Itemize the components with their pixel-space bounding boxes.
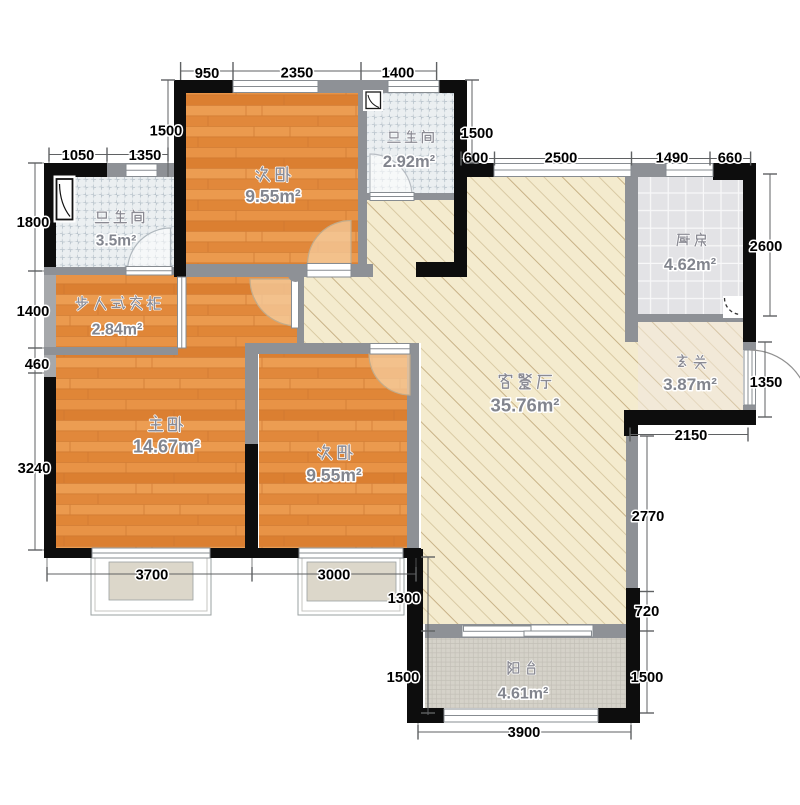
svg-text:1500: 1500 xyxy=(150,124,183,140)
svg-text:1400: 1400 xyxy=(382,66,415,82)
svg-text:4.61m²: 4.61m² xyxy=(498,686,549,703)
svg-text:9.55m²: 9.55m² xyxy=(245,186,301,206)
svg-text:1350: 1350 xyxy=(129,148,162,164)
svg-text:3240: 3240 xyxy=(18,461,51,477)
svg-text:3.87m²: 3.87m² xyxy=(663,375,717,394)
svg-text:2770: 2770 xyxy=(632,509,665,525)
svg-text:1400: 1400 xyxy=(17,304,50,320)
svg-text:35.76m²: 35.76m² xyxy=(491,395,560,416)
svg-text:2.92m²: 2.92m² xyxy=(383,153,436,171)
svg-text:1500: 1500 xyxy=(631,670,664,686)
svg-text:1350: 1350 xyxy=(750,375,783,391)
svg-text:1800: 1800 xyxy=(17,215,50,231)
svg-text:2350: 2350 xyxy=(281,66,314,82)
svg-text:600: 600 xyxy=(464,151,489,167)
svg-text:3900: 3900 xyxy=(508,725,541,741)
svg-text:950: 950 xyxy=(195,66,220,82)
svg-text:2500: 2500 xyxy=(545,151,578,167)
svg-text:720: 720 xyxy=(635,604,660,620)
svg-text:2.84m²: 2.84m² xyxy=(92,322,143,339)
svg-text:1490: 1490 xyxy=(656,151,689,167)
svg-text:4.62m²: 4.62m² xyxy=(664,256,717,274)
svg-text:460: 460 xyxy=(25,357,50,373)
svg-text:2150: 2150 xyxy=(675,428,708,444)
svg-text:14.67m²: 14.67m² xyxy=(133,436,200,456)
svg-text:3000: 3000 xyxy=(318,568,351,584)
svg-text:660: 660 xyxy=(718,151,743,167)
svg-text:2600: 2600 xyxy=(750,239,783,255)
svg-text:9.55m²: 9.55m² xyxy=(306,465,362,485)
svg-text:1500: 1500 xyxy=(387,670,420,686)
svg-text:1500: 1500 xyxy=(461,126,494,142)
svg-text:3.5m²: 3.5m² xyxy=(96,232,137,249)
svg-text:1050: 1050 xyxy=(62,148,95,164)
svg-text:3700: 3700 xyxy=(136,568,169,584)
svg-text:1300: 1300 xyxy=(388,591,421,607)
